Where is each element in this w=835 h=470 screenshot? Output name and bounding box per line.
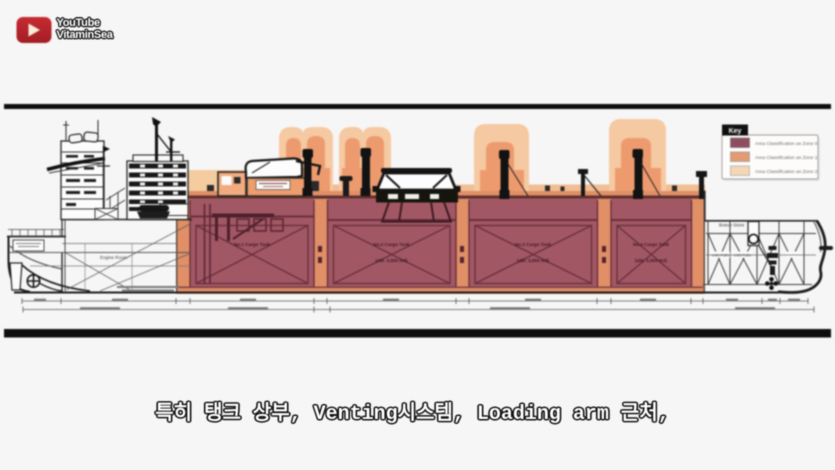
svg-text:LNG FUEL: LNG FUEL bbox=[734, 254, 752, 258]
svg-text:Area Classification as Zone 0: Area Classification as Zone 0 bbox=[755, 141, 818, 147]
svg-text:LNG FUEL: LNG FUEL bbox=[712, 254, 730, 258]
svg-text:No.2 Cargo Tank: No.2 Cargo Tank bbox=[373, 242, 410, 247]
svg-text:Area Classification as Zone 1: Area Classification as Zone 1 bbox=[755, 155, 818, 161]
svg-text:Area Classification as Zone 2: Area Classification as Zone 2 bbox=[755, 169, 818, 175]
svg-text:Key: Key bbox=[729, 128, 742, 135]
svg-text:No.3 Cargo Tank: No.3 Cargo Tank bbox=[515, 242, 552, 247]
svg-text:(abt. 3,500 m3): (abt. 3,500 m3) bbox=[376, 258, 408, 263]
svg-text:(abt. 3,500 m3): (abt. 3,500 m3) bbox=[517, 258, 549, 263]
svg-text:Engine Room: Engine Room bbox=[100, 255, 128, 260]
svg-text:No.4 Cargo Tank: No.4 Cargo Tank bbox=[633, 242, 670, 247]
svg-text:No.1 Cargo Tank: No.1 Cargo Tank bbox=[234, 242, 271, 247]
svg-text:Bosun Store: Bosun Store bbox=[719, 223, 745, 228]
svg-text:(abt. 3,500 m3): (abt. 3,500 m3) bbox=[635, 258, 667, 263]
